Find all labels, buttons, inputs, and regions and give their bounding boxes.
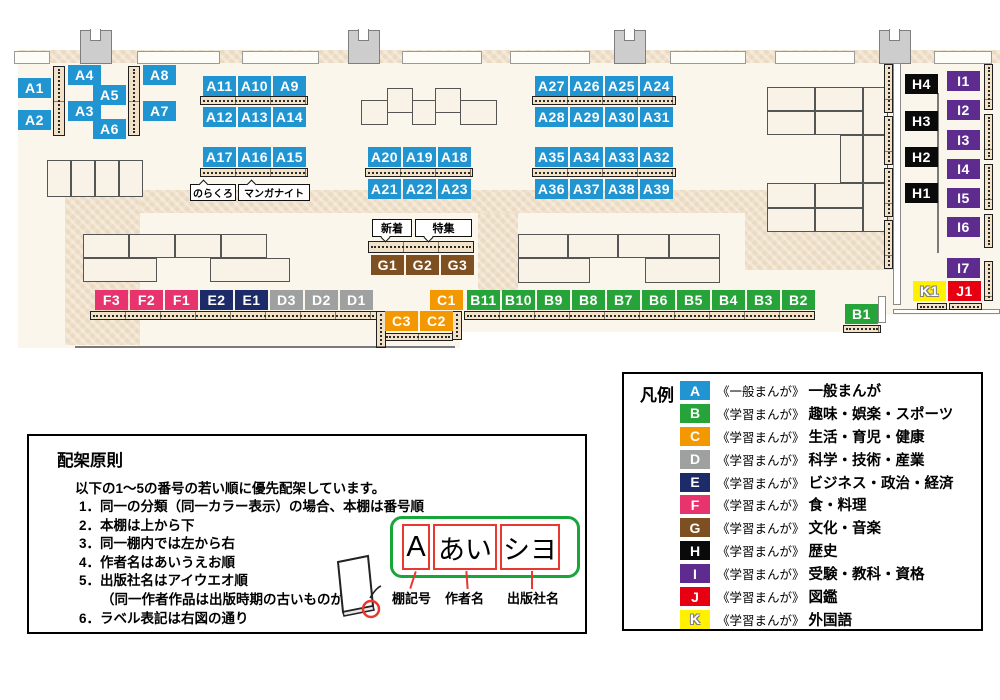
window-opening: [14, 51, 50, 64]
bookshelf-strip: [917, 303, 947, 310]
legend-category: 一般まんが: [809, 380, 882, 401]
bookshelf-strip: [884, 116, 893, 165]
shelf-block: [815, 208, 863, 232]
wall-corridor: [478, 213, 518, 292]
legend-row-K: K《学習まんが》外国語: [680, 610, 954, 629]
shelf-block: [767, 183, 815, 208]
shelf-label-A22: A22: [403, 179, 436, 199]
shelf-label-A35: A35: [535, 147, 568, 167]
shelf-label-A13: A13: [238, 107, 271, 127]
bookshelf-strip: [984, 164, 993, 210]
shelf-block: [568, 234, 618, 258]
legend-box: 凡例 A《一般まんが》一般まんがB《学習まんが》趣味・娯楽・スポーツC《学習まん…: [622, 372, 983, 631]
legend-chip-D: D: [680, 450, 710, 469]
shelf-label-C1: C1: [430, 290, 463, 310]
shelf-block: [767, 111, 815, 135]
shelf-label-A11: A11: [203, 76, 236, 96]
shelf-label-H3: H3: [905, 111, 938, 131]
shelf-block: [460, 100, 497, 125]
shelf-block: [175, 234, 221, 258]
shelf-label-B1: B1: [845, 304, 878, 324]
shelf-block: [669, 234, 720, 258]
shelf-label-I2: I2: [947, 100, 980, 120]
shelf-block: [387, 88, 413, 113]
shelf-label-A9: A9: [273, 76, 306, 96]
shelf-block: [840, 135, 863, 183]
window-opening: [934, 51, 992, 64]
legend-chip-A: A: [680, 381, 710, 400]
callout-のらくろ: のらくろ: [190, 184, 236, 201]
callout-特集: 特集: [415, 219, 472, 237]
legend-category: ビジネス・政治・経済: [809, 472, 954, 493]
legend-category: 生活・育児・健康: [809, 426, 925, 447]
shelf-label-C2: C2: [420, 311, 453, 331]
shelf-label-B5: B5: [677, 290, 710, 310]
shelf-label-G1: G1: [371, 255, 404, 275]
legend-row-D: D《学習まんが》科学・技術・産業: [680, 450, 954, 469]
shelf-label-B4: B4: [712, 290, 745, 310]
legend-series: 《学習まんが》: [717, 518, 805, 537]
shelf-label-A34: A34: [570, 147, 603, 167]
wall-segment: [878, 296, 886, 323]
shelf-label-B11: B11: [467, 290, 500, 310]
callout-line: [531, 571, 533, 589]
shelf-label-B3: B3: [747, 290, 780, 310]
legend-chip-J: J: [680, 587, 710, 606]
window-opening: [242, 51, 319, 64]
partition-line: [75, 346, 455, 348]
shelf-label-A27: A27: [535, 76, 568, 96]
shelf-block: [435, 88, 461, 113]
legend-category: 食・料理: [809, 494, 867, 515]
shelf-label-K1: K1: [913, 281, 946, 301]
principles-title: 配架原則: [57, 447, 123, 471]
shelf-block: [119, 160, 143, 197]
shelf-label-H1: H1: [905, 183, 938, 203]
shelf-block: [767, 208, 815, 232]
shelf-label-A23: A23: [438, 179, 471, 199]
caption-shelf-code: 棚記号: [392, 588, 431, 607]
caption-author: 作者名: [445, 588, 484, 607]
shelf-block: [815, 111, 863, 135]
legend-category: 文化・音楽: [809, 517, 882, 538]
bookshelf-strip: [884, 220, 893, 269]
bookshelf-strip: [464, 311, 815, 320]
shelf-block: [767, 87, 815, 111]
window-opening: [510, 51, 590, 64]
label-author-box: あい: [433, 524, 497, 570]
bookshelf-strip: [884, 168, 893, 217]
shelf-label-H2: H2: [905, 147, 938, 167]
floor-map-page: A1A2A4A5A3A6A8A7A11A10A9A12A13A14A17A16A…: [0, 0, 1000, 700]
legend-chip-G: G: [680, 518, 710, 537]
shelf-label-A15: A15: [273, 147, 306, 167]
principle-item: 2．本棚は上から下: [79, 517, 424, 536]
legend-chip-E: E: [680, 473, 710, 492]
bookshelf-strip: [532, 96, 676, 105]
shelf-block: [815, 87, 863, 111]
bookshelf-strip: [200, 96, 308, 105]
pillar: [879, 30, 911, 64]
shelf-block: [361, 100, 388, 125]
bookshelf-strip: [984, 114, 993, 160]
legend-series: 《学習まんが》: [717, 610, 805, 629]
shelf-label-A30: A30: [605, 107, 638, 127]
shelf-label-I3: I3: [947, 130, 980, 150]
shelf-label-A24: A24: [640, 76, 673, 96]
legend-rows: A《一般まんが》一般まんがB《学習まんが》趣味・娯楽・スポーツC《学習まんが》生…: [680, 381, 954, 629]
shelf-block: [221, 234, 267, 258]
bookshelf-strip: [532, 168, 676, 177]
shelf-label-A3: A3: [68, 101, 101, 121]
bookshelf-strip: [452, 311, 462, 340]
shelf-label-B6: B6: [642, 290, 675, 310]
bookshelf-strip: [368, 241, 474, 253]
shelf-label-I5: I5: [947, 188, 980, 208]
bookshelf-strip: [984, 64, 993, 110]
shelf-label-D2: D2: [305, 290, 338, 310]
shelf-block: [645, 258, 720, 283]
shelf-block: [47, 160, 71, 197]
shelf-label-A37: A37: [570, 179, 603, 199]
shelf-label-B2: B2: [782, 290, 815, 310]
shelf-label-G3: G3: [441, 255, 474, 275]
shelf-label-A25: A25: [605, 76, 638, 96]
legend-row-F: F《学習まんが》食・料理: [680, 495, 954, 514]
shelf-block: [210, 258, 290, 282]
bookshelf-strip: [200, 168, 308, 177]
legend-chip-B: B: [680, 404, 710, 423]
legend-row-J: J《学習まんが》図鑑: [680, 587, 954, 606]
shelf-label-A4: A4: [68, 65, 101, 85]
legend-row-E: E《学習まんが》ビジネス・政治・経済: [680, 473, 954, 492]
bookshelf-strip: [90, 311, 377, 320]
shelf-label-A39: A39: [640, 179, 673, 199]
shelf-label-A38: A38: [605, 179, 638, 199]
shelf-label-A26: A26: [570, 76, 603, 96]
bookshelf-strip: [949, 303, 982, 310]
legend-series: 《学習まんが》: [717, 473, 805, 492]
legend-row-I: I《学習まんが》受験・教科・資格: [680, 564, 954, 583]
shelf-block: [95, 160, 119, 197]
window-opening: [137, 51, 220, 64]
shelf-label-A32: A32: [640, 147, 673, 167]
shelf-label-I4: I4: [947, 159, 980, 179]
shelf-block: [412, 100, 436, 125]
bookshelf-strip: [383, 333, 453, 341]
window-opening: [670, 51, 746, 64]
legend-series: 《一般まんが》: [717, 381, 805, 400]
legend-series: 《学習まんが》: [717, 404, 805, 423]
shelf-block: [83, 234, 129, 258]
pillar: [614, 30, 646, 64]
shelf-block: [83, 258, 157, 282]
shelf-label-H4: H4: [905, 74, 938, 94]
principles-intro: 以下の1～5の番号の若い順に優先配架しています。: [75, 477, 385, 497]
legend-series: 《学習まんが》: [717, 587, 805, 606]
shelf-label-A33: A33: [605, 147, 638, 167]
bookshelf-strip: [843, 325, 881, 333]
bookshelf-strip: [128, 66, 140, 136]
legend-series: 《学習まんが》: [717, 427, 805, 446]
shelf-label-E2: E2: [200, 290, 233, 310]
callout-マンガナイト: マンガナイト: [238, 184, 310, 201]
legend-row-A: A《一般まんが》一般まんが: [680, 381, 954, 400]
pillar: [348, 30, 380, 64]
legend-category: 歴史: [809, 540, 838, 561]
shelf-label-I7: I7: [947, 258, 980, 278]
label-shelf-code-box: A: [402, 524, 430, 570]
legend-chip-I: I: [680, 564, 710, 583]
legend-row-G: G《学習まんが》文化・音楽: [680, 518, 954, 537]
pillar: [80, 30, 112, 64]
book-illustration: [326, 546, 388, 624]
bookshelf-strip: [365, 168, 473, 177]
legend-title: 凡例: [640, 381, 674, 406]
shelf-label-A6: A6: [93, 119, 126, 139]
legend-series: 《学習まんが》: [717, 541, 805, 560]
legend-category: 受験・教科・資格: [809, 563, 925, 584]
shelf-label-A31: A31: [640, 107, 673, 127]
shelf-block: [518, 234, 568, 258]
shelf-label-A20: A20: [368, 147, 401, 167]
shelf-label-A17: A17: [203, 147, 236, 167]
shelf-label-J1: J1: [948, 281, 981, 301]
shelf-label-A18: A18: [438, 147, 471, 167]
window-opening: [402, 51, 482, 64]
shelf-label-I1: I1: [947, 71, 980, 91]
shelf-label-G2: G2: [406, 255, 439, 275]
shelf-label-B7: B7: [607, 290, 640, 310]
legend-row-B: B《学習まんが》趣味・娯楽・スポーツ: [680, 404, 954, 423]
shelf-label-F1: F1: [165, 290, 198, 310]
shelf-label-A28: A28: [535, 107, 568, 127]
legend-category: 図鑑: [809, 586, 838, 607]
shelf-block: [71, 160, 95, 197]
shelf-block: [618, 234, 669, 258]
caption-publisher: 出版社名: [507, 588, 559, 607]
shelf-label-F3: F3: [95, 290, 128, 310]
legend-row-C: C《学習まんが》生活・育児・健康: [680, 427, 954, 446]
shelf-label-A10: A10: [238, 76, 271, 96]
callout-新着: 新着: [372, 219, 412, 237]
shelf-label-F2: F2: [130, 290, 163, 310]
legend-chip-K: K: [680, 610, 710, 629]
shelf-label-A12: A12: [203, 107, 236, 127]
legend-chip-C: C: [680, 427, 710, 446]
wall-segment: [893, 63, 901, 305]
shelf-label-A1: A1: [18, 78, 51, 98]
label-publisher-box: シヨ: [500, 524, 560, 570]
shelf-label-C3: C3: [385, 311, 418, 331]
shelf-label-A21: A21: [368, 179, 401, 199]
shelf-label-A19: A19: [403, 147, 436, 167]
window-opening: [775, 51, 855, 64]
shelf-label-D1: D1: [340, 290, 373, 310]
shelf-block: [815, 183, 863, 208]
shelf-label-E1: E1: [235, 290, 268, 310]
shelf-label-A2: A2: [18, 110, 51, 130]
shelf-label-I6: I6: [947, 217, 980, 237]
legend-series: 《学習まんが》: [717, 564, 805, 583]
legend-category: 趣味・娯楽・スポーツ: [809, 403, 954, 424]
shelf-label-A16: A16: [238, 147, 271, 167]
shelf-label-A7: A7: [143, 101, 176, 121]
shelf-block: [129, 234, 175, 258]
shelf-label-A8: A8: [143, 65, 176, 85]
legend-chip-F: F: [680, 495, 710, 514]
bookshelf-strip: [984, 261, 993, 301]
shelf-label-B8: B8: [572, 290, 605, 310]
shelf-label-A29: A29: [570, 107, 603, 127]
principle-item: 1．同一の分類（同一カラー表示）の場合、本棚は番号順: [79, 498, 424, 517]
bookshelf-strip: [884, 64, 893, 113]
shelf-block: [518, 258, 590, 283]
legend-series: 《学習まんが》: [717, 495, 805, 514]
shelf-label-A14: A14: [273, 107, 306, 127]
bookshelf-strip: [53, 66, 65, 136]
shelf-label-B9: B9: [537, 290, 570, 310]
legend-category: 科学・技術・産業: [809, 449, 925, 470]
label-example: A あい シヨ: [390, 516, 580, 578]
shelf-label-B10: B10: [502, 290, 535, 310]
bookshelf-strip: [984, 214, 993, 248]
legend-category: 外国語: [809, 609, 853, 630]
legend-row-H: H《学習まんが》歴史: [680, 541, 954, 560]
shelf-label-D3: D3: [270, 290, 303, 310]
shelf-label-A36: A36: [535, 179, 568, 199]
legend-chip-H: H: [680, 541, 710, 560]
legend-series: 《学習まんが》: [717, 450, 805, 469]
